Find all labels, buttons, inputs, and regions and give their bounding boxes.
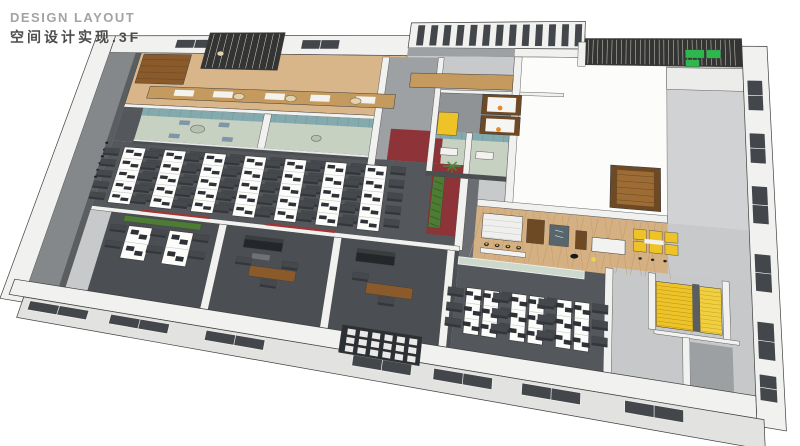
desk-monitor <box>130 229 139 235</box>
desk-monitor <box>241 183 249 187</box>
meeting-table-2 <box>476 151 494 159</box>
shelf-box <box>396 345 405 352</box>
desk-monitor <box>369 223 377 228</box>
desk-monitor <box>252 174 260 178</box>
round-table <box>233 93 244 99</box>
desk-monitor <box>244 171 252 175</box>
desk-monitor <box>214 159 222 163</box>
desk-monitor <box>166 152 174 156</box>
desk-monitor <box>376 171 384 175</box>
page-title: DESIGN LAYOUT <box>10 10 141 25</box>
clerestory-window <box>561 24 569 46</box>
counter-item <box>213 91 234 98</box>
Booth Seating <box>633 229 646 240</box>
meeting-table <box>191 125 205 133</box>
counter-item <box>264 93 285 100</box>
clerestory-window <box>522 25 530 47</box>
desk-monitor <box>171 234 180 240</box>
pantry-sink <box>217 51 223 55</box>
meeting-chair <box>179 120 191 125</box>
mascot-figure <box>496 127 501 132</box>
shelf-box <box>384 334 393 341</box>
desk-monitor <box>160 175 168 179</box>
desk-monitor <box>126 246 135 252</box>
desk-monitor <box>334 181 342 185</box>
shelf-box <box>382 351 391 358</box>
stair-wall <box>648 273 655 330</box>
desk-monitor <box>130 164 138 168</box>
desk-monitor <box>206 156 214 160</box>
counter-item <box>310 95 331 102</box>
desk-monitor <box>323 190 331 194</box>
clerestory-base <box>407 48 515 57</box>
desk-monitor <box>282 186 290 190</box>
Bar Counter <box>481 213 523 242</box>
desk-monitor <box>372 197 380 201</box>
desk-monitor <box>321 203 329 207</box>
terrace-path <box>667 68 744 92</box>
pendant-lamp <box>591 257 596 262</box>
desk-monitor <box>126 149 134 153</box>
desk-monitor <box>374 184 382 188</box>
phone-booth-counter <box>409 73 513 90</box>
desk-monitor <box>134 153 142 157</box>
desk-monitor <box>331 194 339 198</box>
desk-monitor <box>293 178 301 182</box>
desk-monitor <box>288 202 296 206</box>
bar-stool-seat <box>517 247 520 249</box>
Booth Seating <box>665 232 678 243</box>
wall-spot-icon <box>105 142 108 144</box>
desk-monitor <box>203 167 211 171</box>
desk-monitor <box>285 174 293 178</box>
terrace-sofa <box>706 50 721 59</box>
menu-board <box>549 224 569 247</box>
desk-monitor <box>171 167 179 171</box>
wood-frame <box>575 230 587 250</box>
shelf-box <box>397 336 406 343</box>
meeting-table-2 <box>440 148 458 156</box>
counter-item <box>174 90 195 97</box>
desk-monitor <box>368 168 376 172</box>
desk-monitor <box>200 179 208 183</box>
stair-mid-wall <box>692 284 700 333</box>
terrace-sofa <box>685 60 699 68</box>
booth-stool <box>663 260 666 262</box>
display-box-inner <box>487 97 517 113</box>
round-table <box>350 98 361 104</box>
shelf-box <box>359 331 368 338</box>
desk-monitor <box>325 177 333 181</box>
desk-monitor <box>362 207 370 211</box>
clerestory-window <box>535 24 543 46</box>
desk-monitor <box>163 164 171 168</box>
meeting-chair <box>222 137 234 142</box>
booth-stool <box>638 257 641 259</box>
wood-feature-panel <box>526 219 544 244</box>
desk-monitor <box>198 191 206 195</box>
desk-monitor <box>287 162 295 166</box>
terrace-sofa <box>685 50 704 59</box>
desk-monitor <box>239 195 247 199</box>
Booth Seating <box>665 244 678 256</box>
meeting-chair <box>218 122 230 127</box>
round-table <box>285 95 296 101</box>
person-figure <box>570 254 578 259</box>
desk-monitor <box>179 239 188 245</box>
yellow-accent-wall <box>437 112 459 136</box>
design-layout-canvas: DESIGN LAYOUT 空间设计实现.3F <box>0 0 800 446</box>
clerestory-window <box>548 24 556 46</box>
shelf-box <box>383 343 392 350</box>
mascot-figure <box>498 106 503 111</box>
desk-monitor <box>364 194 372 198</box>
floorplan-render <box>0 0 800 446</box>
desk-monitor <box>291 190 299 194</box>
desk-monitor <box>255 162 263 166</box>
desk-monitor <box>295 165 303 169</box>
terrace-wall <box>578 42 586 66</box>
east-walkway <box>667 68 750 231</box>
shelf-box <box>371 341 380 348</box>
desk-monitor <box>209 182 217 186</box>
page-subtitle: 空间设计实现.3F <box>10 27 141 47</box>
booth-stool <box>651 259 654 261</box>
bar-stool-seat <box>496 244 499 246</box>
title-block: DESIGN LAYOUT 空间设计实现.3F <box>10 10 141 47</box>
desk-monitor <box>250 186 258 190</box>
shelf-box <box>409 338 418 345</box>
wall-spot-icon <box>101 155 104 157</box>
desk-monitor <box>329 206 337 210</box>
desk-monitor <box>168 179 176 183</box>
desk-monitor <box>174 156 182 160</box>
bar-stool-seat <box>507 245 510 247</box>
desk-monitor <box>366 181 374 185</box>
desk-monitor <box>336 168 344 172</box>
desk-monitor <box>247 159 255 163</box>
pantry-shelving <box>135 54 192 84</box>
desk-monitor <box>138 234 147 240</box>
desk-monitor <box>327 165 335 169</box>
desk-monitor <box>212 171 220 175</box>
meeting-chair <box>168 133 180 138</box>
bar-stool-seat <box>485 243 488 245</box>
shelf-box <box>408 347 417 354</box>
meeting-table <box>311 135 321 141</box>
